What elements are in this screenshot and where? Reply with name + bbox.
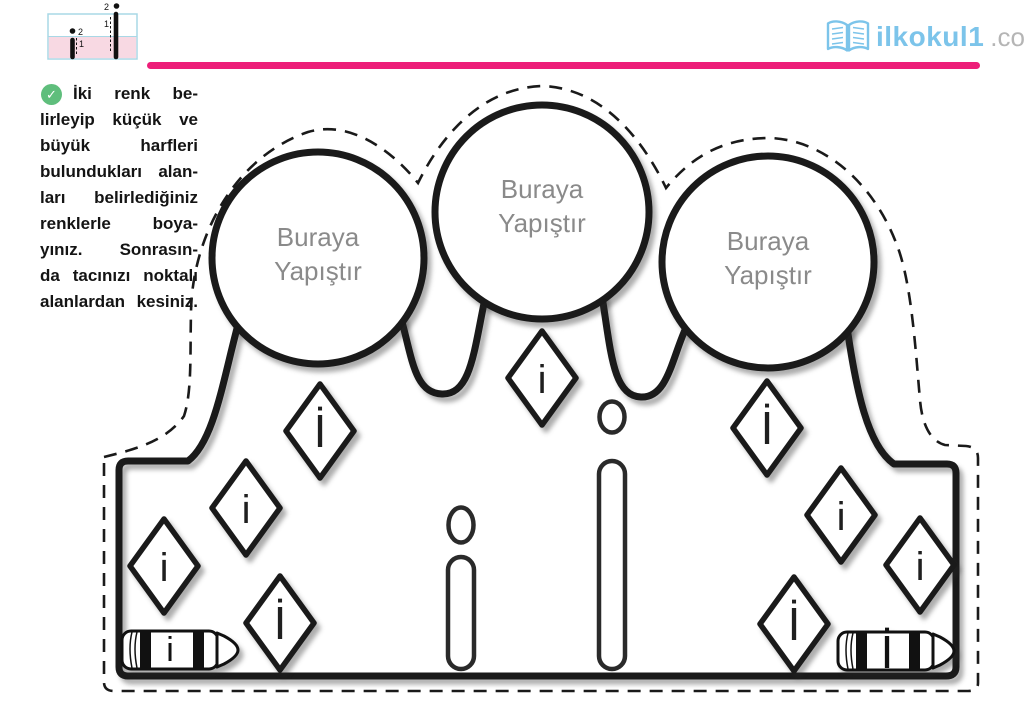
diamond-letter: İ [314, 405, 327, 457]
crown-template: Buraya Yapıştır Buraya Yapıştır Buraya Y… [0, 0, 1024, 724]
paste-label-line1: Buraya [277, 222, 360, 252]
diamond-lowercase-i: i [807, 468, 875, 562]
diamond-letter: i [837, 495, 846, 539]
paste-label-line2: Yapıştır [498, 208, 586, 238]
trace-small-i-dot [449, 508, 474, 543]
diamond-lowercase-i: i [886, 518, 954, 612]
diamond-lowercase-i: i [212, 461, 280, 555]
diamond-letter: İ [761, 402, 774, 454]
crayon-tip [217, 633, 238, 667]
diamond-capital-i: İ [286, 384, 354, 478]
paste-label-line1: Buraya [501, 174, 584, 204]
worksheet-page: 2 1 2 1 ilkokul1.com ✓ [0, 0, 1024, 724]
diamond-capital-i: İ [760, 577, 828, 671]
diamond-letter: İ [788, 598, 801, 650]
trace-small-i-stem [448, 557, 474, 669]
paste-label-line2: Yapıştır [274, 256, 362, 286]
diamond-lowercase-i: i [508, 331, 576, 425]
crayon-left: i [122, 631, 238, 669]
diamond-lowercase-i: i [130, 519, 198, 613]
trace-capital-i-stem [599, 461, 625, 669]
diamond-capital-i: İ [733, 381, 801, 475]
diamond-capital-i: İ [246, 576, 314, 670]
paste-label-line1: Buraya [727, 226, 810, 256]
trace-letter-small-i [448, 508, 474, 670]
crayon-letter-capital-i: İ [881, 626, 894, 678]
paste-label-line2: Yapıştır [724, 260, 812, 290]
diamond-letter: i [538, 358, 547, 402]
diamond-letter: i [160, 546, 169, 590]
diamond-letter: i [242, 488, 251, 532]
crayon-letter-small-i: i [166, 631, 174, 669]
crayon-tip [933, 634, 954, 668]
trace-letter-capital-i [599, 402, 625, 670]
trace-capital-i-dot [600, 402, 625, 433]
diamond-letter: İ [274, 597, 287, 649]
diamond-letter: i [916, 545, 925, 589]
crayon-right: İ [838, 626, 954, 678]
